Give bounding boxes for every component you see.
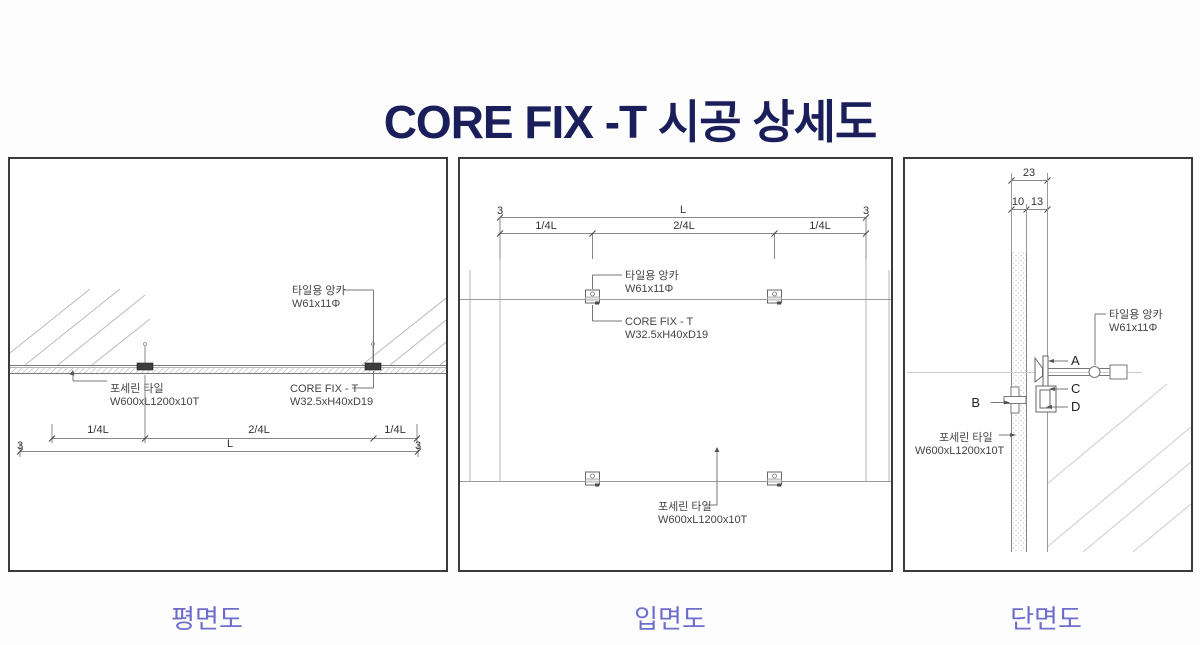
porcelain-tile-spec: W600xL1200x10T <box>658 514 748 526</box>
tile-joint-grid <box>460 259 891 482</box>
dim-quarter-left: 1/4L <box>535 220 556 232</box>
core-fix-label: CORE FIX - T <box>290 383 359 395</box>
countersunk-head <box>1035 358 1043 382</box>
caption-elevation-view: 입면도 <box>458 599 882 636</box>
panel-plan-view: 타일용 앙카 W61x11Φ 포세린 타일 W600xL1200x10T COR… <box>8 157 448 572</box>
wall-hatch <box>1047 384 1191 552</box>
porcelain-tile-label: 포세린 타일 <box>110 381 164 395</box>
panel-elevation-view: L 3 3 1/4L 2/4L 1/4L <box>458 157 893 572</box>
core-fix-anchor-marker <box>586 472 600 487</box>
tile-anchor-spec: W61x11Φ <box>1109 322 1158 334</box>
dim-quarter-right: 1/4L <box>384 424 405 436</box>
dim-joint-right: 3 <box>415 440 421 452</box>
core-fix-spec: W32.5xH40xD19 <box>625 329 708 341</box>
marker-c: C <box>1071 381 1080 396</box>
dimension-total <box>17 443 421 457</box>
tile-anchor-label: 타일용 앙카 <box>292 283 346 297</box>
marker-b: B <box>971 395 980 410</box>
tile-anchor-label: 타일용 앙카 <box>625 268 679 282</box>
anchor-pin <box>1089 367 1100 378</box>
wall-hatch-right <box>362 295 446 365</box>
dim-offset: 13 <box>1031 196 1043 208</box>
porcelain-tile-spec: W600xL1200x10T <box>110 396 200 408</box>
anchor-nut <box>1110 365 1127 379</box>
dim-joint-left: 3 <box>17 440 23 452</box>
dim-joint-left: 3 <box>497 205 503 217</box>
porcelain-tile-label: 포세린 타일 <box>939 430 993 444</box>
caption-plan-view: 평면도 <box>8 599 406 636</box>
dim-total-length: L <box>680 204 686 216</box>
dim-total-length: L <box>227 438 233 450</box>
tile-anchor-leader <box>1095 314 1106 365</box>
caption-section-view: 단면도 <box>903 599 1189 636</box>
panel-section-view: 23 10 13 <box>903 157 1193 572</box>
dim-tile: 10 <box>1012 196 1024 208</box>
porcelain-tile-label: 포세린 타일 <box>658 499 712 513</box>
tile-anchor-leader <box>593 275 623 289</box>
core-fix-leader <box>593 305 623 321</box>
core-fix-spec: W32.5xH40xD19 <box>290 396 373 408</box>
dim-joint-right: 3 <box>863 205 869 217</box>
marker-a-leader <box>1048 359 1068 363</box>
core-fix-anchor-marker <box>586 290 600 305</box>
porcelain-tile-leader <box>705 447 720 505</box>
porcelain-tile-spec: W600xL1200x10T <box>915 445 1005 457</box>
page-title: CORE FIX -T 시공 상세도 <box>60 86 1200 152</box>
plan-view-drawing: 타일용 앙카 W61x11Φ 포세린 타일 W600xL1200x10T COR… <box>10 159 446 570</box>
section-view-drawing: 23 10 13 <box>905 159 1191 570</box>
dim-quarter-left: 1/4L <box>87 424 108 436</box>
dim-half-center: 2/4L <box>248 424 269 436</box>
core-fix-anchor-marker <box>768 472 782 487</box>
dim-total: 23 <box>1023 167 1035 179</box>
tile-anchor-marker <box>137 343 153 371</box>
elevation-view-drawing: L 3 3 1/4L 2/4L 1/4L <box>460 159 891 570</box>
wall-hatch-left <box>10 289 150 365</box>
tile-anchor-spec: W61x11Φ <box>292 298 341 310</box>
core-fix-label: CORE FIX - T <box>625 316 694 328</box>
dim-quarter-right: 1/4L <box>809 220 830 232</box>
dim-half-center: 2/4L <box>673 220 694 232</box>
tile-anchor-spec: W61x11Φ <box>625 283 674 295</box>
core-fix-anchor-marker <box>768 290 782 305</box>
marker-d: D <box>1071 399 1080 414</box>
tile-anchor-label: 타일용 앙카 <box>1109 307 1163 321</box>
marker-a: A <box>1071 353 1080 368</box>
